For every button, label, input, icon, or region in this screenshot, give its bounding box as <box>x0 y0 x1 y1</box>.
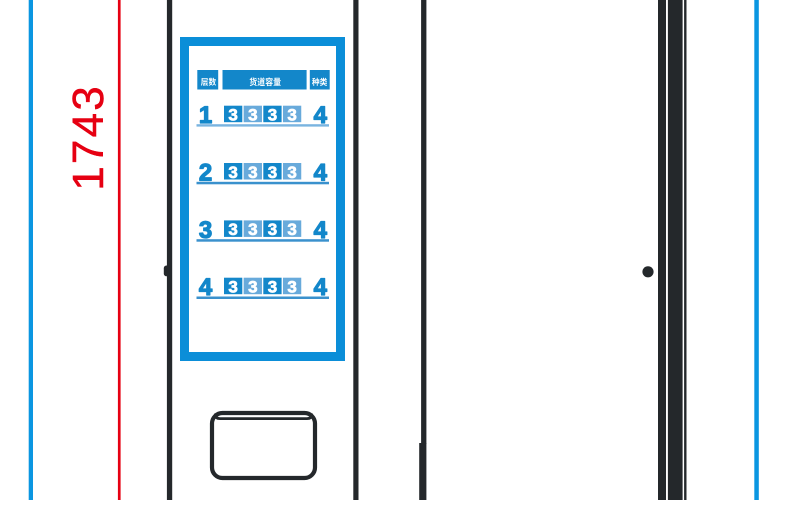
svg-text:3: 3 <box>287 278 296 297</box>
svg-text:3: 3 <box>287 163 296 182</box>
svg-text:3: 3 <box>248 278 257 297</box>
svg-text:3: 3 <box>268 220 277 239</box>
svg-text:3: 3 <box>248 220 257 239</box>
svg-text:3: 3 <box>228 106 237 125</box>
svg-text:3: 3 <box>268 106 277 125</box>
svg-text:3: 3 <box>268 163 277 182</box>
svg-text:3: 3 <box>228 278 237 297</box>
svg-text:3: 3 <box>248 163 257 182</box>
svg-text:3: 3 <box>228 163 237 182</box>
svg-text:1743: 1743 <box>64 84 113 191</box>
svg-text:3: 3 <box>228 220 237 239</box>
svg-text:3: 3 <box>248 106 257 125</box>
svg-text:3: 3 <box>287 220 296 239</box>
svg-text:3: 3 <box>268 278 277 297</box>
svg-text:3: 3 <box>287 106 296 125</box>
